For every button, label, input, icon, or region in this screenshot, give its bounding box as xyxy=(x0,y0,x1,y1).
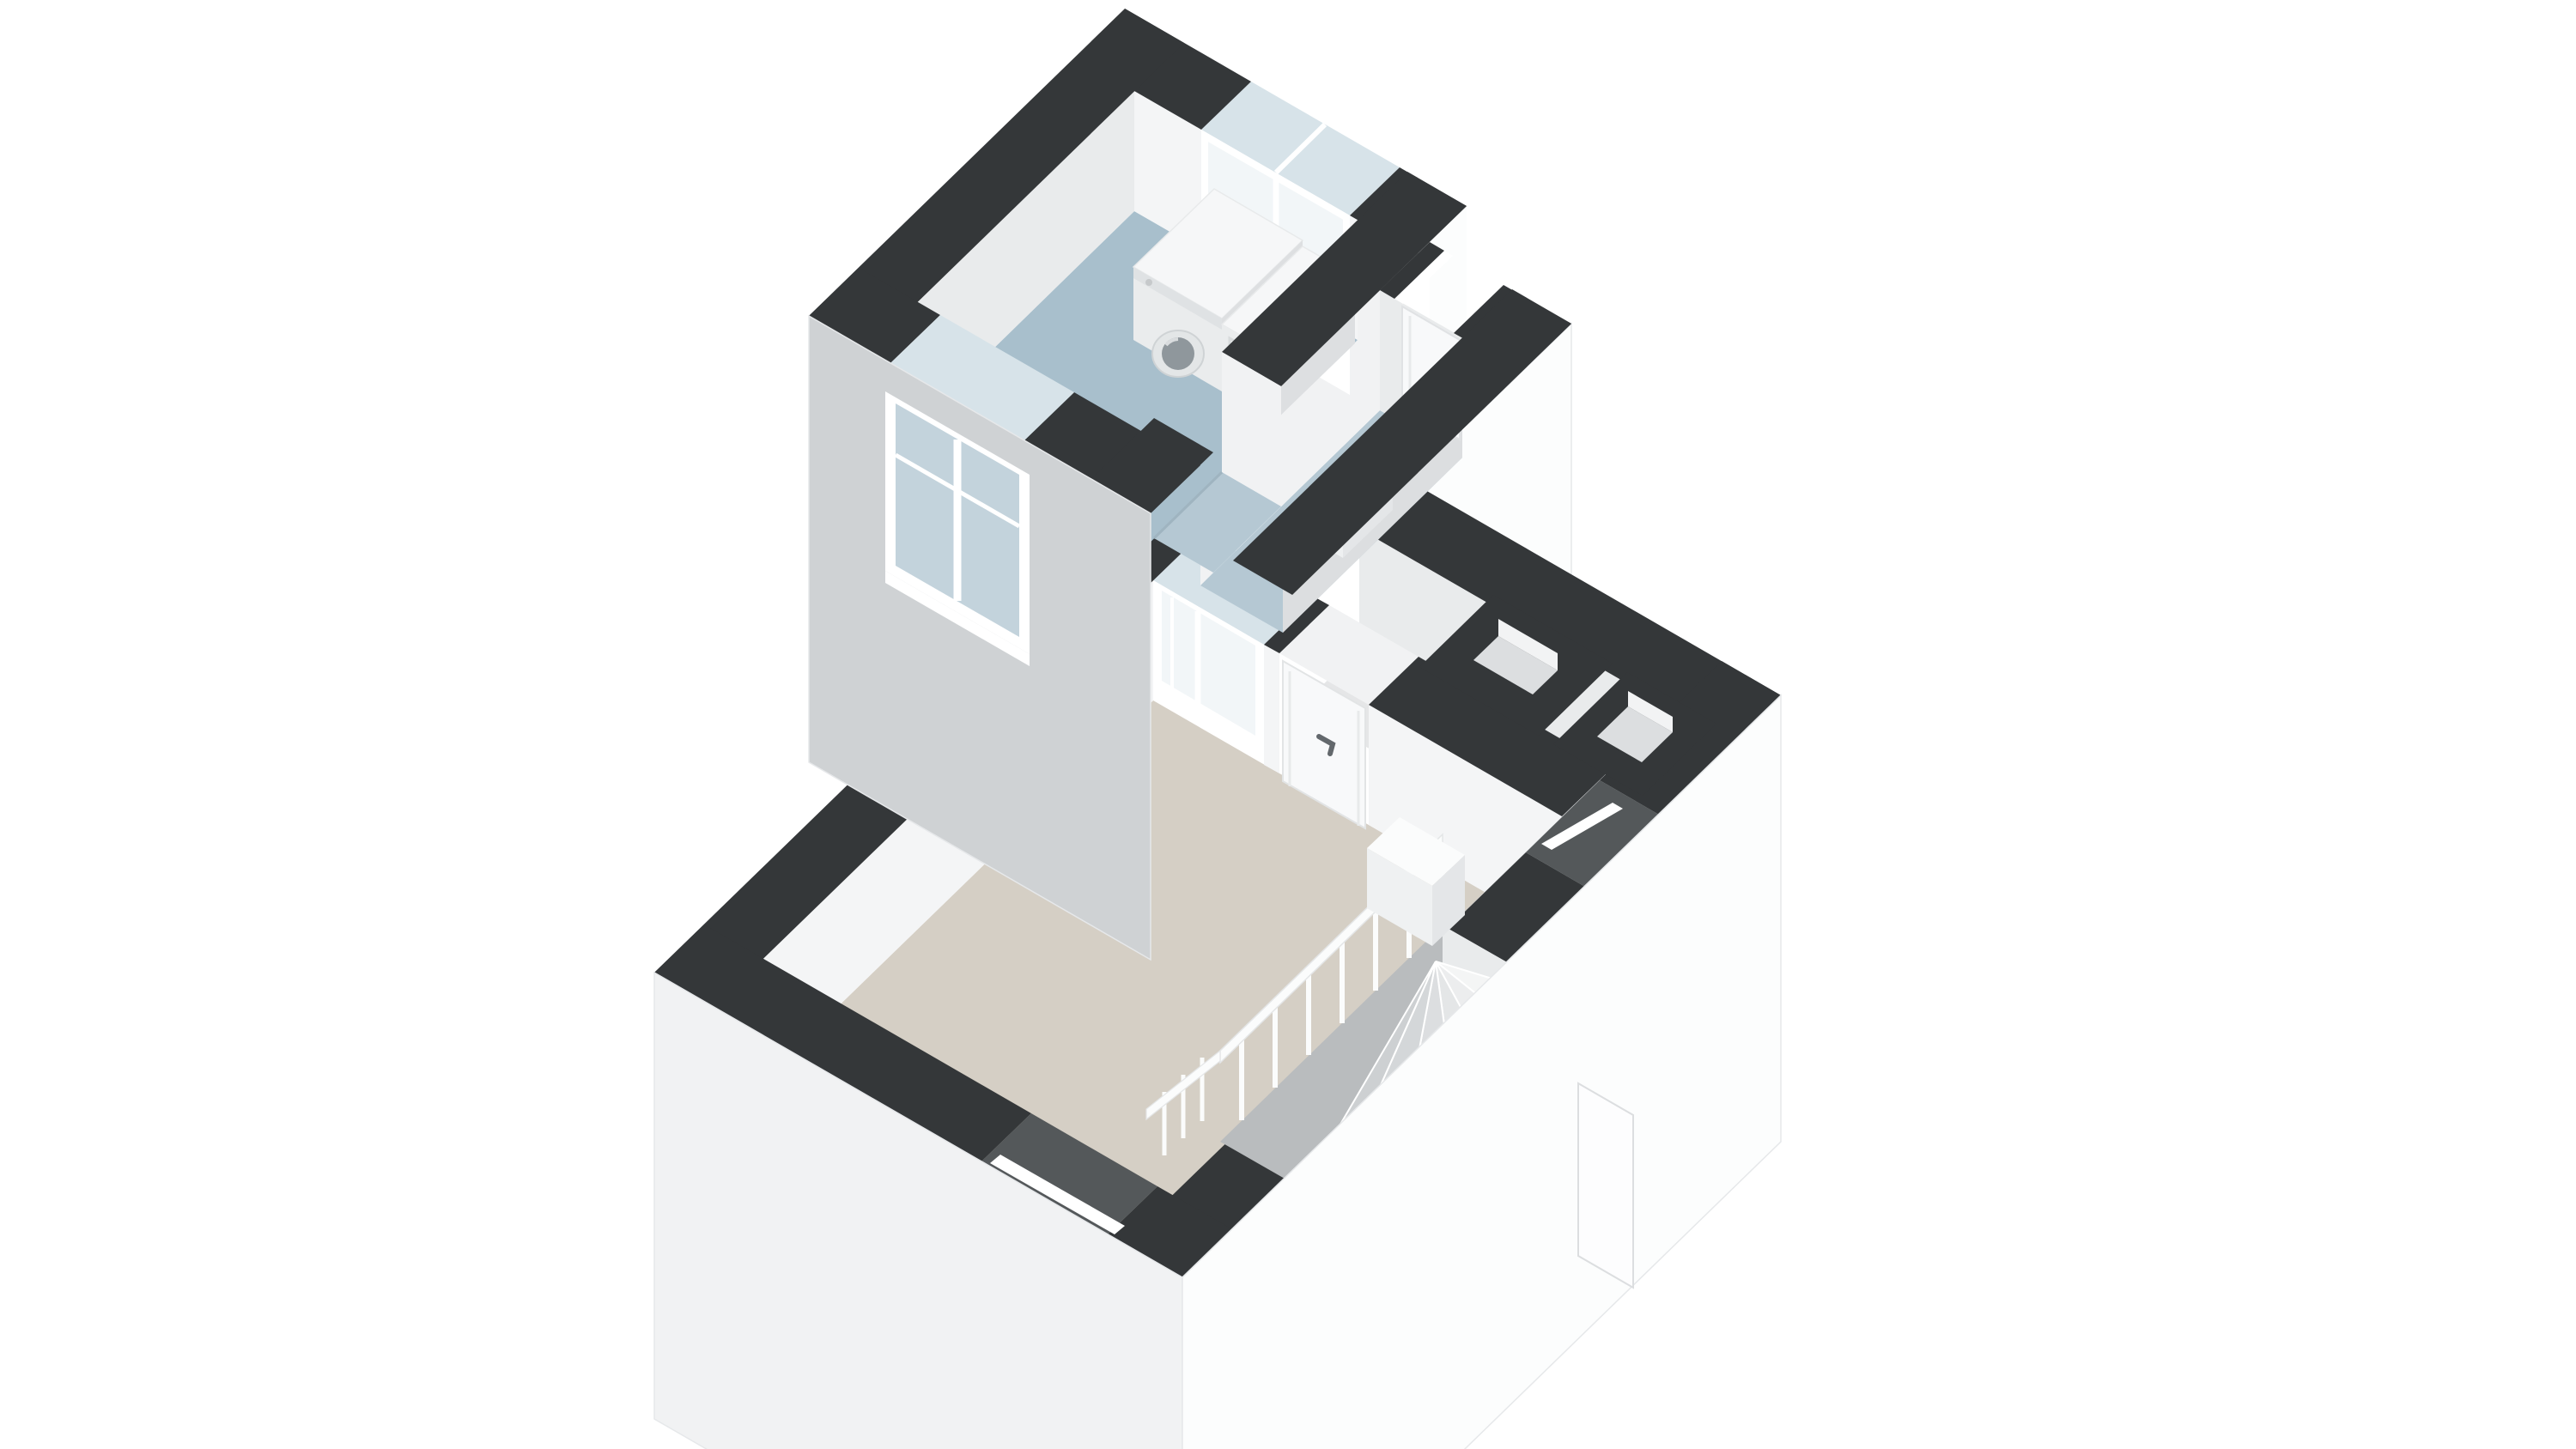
washer-knob-icon xyxy=(1145,279,1152,286)
neighbor-wall-stub xyxy=(1578,1083,1633,1288)
living-room-ne-wall-face-a xyxy=(1264,645,1279,773)
floorplan-svg xyxy=(0,0,2576,1449)
floorplan-canvas xyxy=(0,0,2576,1449)
